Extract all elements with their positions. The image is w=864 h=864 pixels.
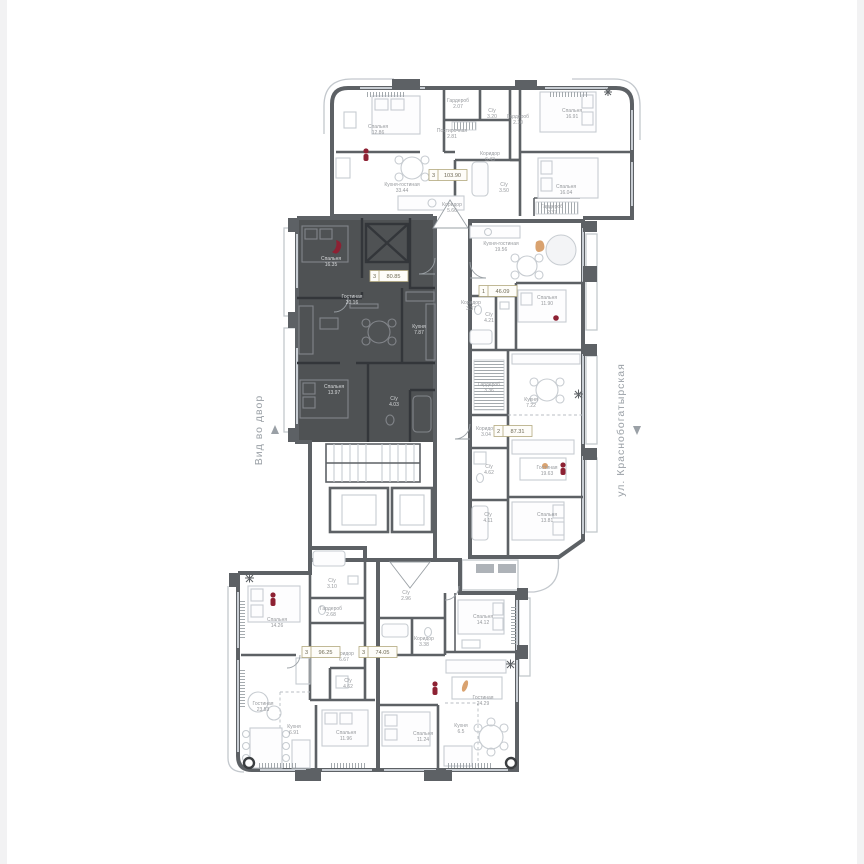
room-area: 13.97 <box>328 390 341 396</box>
room-area: 5.66 <box>447 208 457 214</box>
room-area: 11.90 <box>541 301 553 307</box>
room-area: 19.63 <box>541 471 554 477</box>
badge-room-count: 3 <box>373 274 376 280</box>
apartment-badge: 396.25 <box>302 647 340 658</box>
badge-area: 96.25 <box>319 650 333 656</box>
apartment-badge: 287.31 <box>494 426 532 437</box>
badge-area: 103.90 <box>444 173 461 179</box>
badge-area: 80.85 <box>387 274 401 280</box>
room-area: 2.81 <box>447 134 457 140</box>
room-area: 7.22 <box>526 403 536 409</box>
terrace-planter-2 <box>498 564 516 573</box>
apartment-badge: 146.09 <box>479 286 517 297</box>
room-area: 33.44 <box>396 188 409 194</box>
room-area: 16.35 <box>325 262 338 268</box>
room-area: 23.53 <box>257 707 270 713</box>
room-area: 3.04 <box>481 432 491 438</box>
building-core <box>310 444 435 560</box>
room-area: 11.96 <box>340 736 352 742</box>
room-area: 2.96 <box>401 596 411 602</box>
room-area: 14.12 <box>477 620 490 626</box>
badge-area: 87.31 <box>511 429 525 435</box>
courtyard-label: Вид во двор <box>253 395 265 465</box>
room-area: 4.03 <box>389 402 399 408</box>
room-area: 11.24 <box>417 737 429 743</box>
room-area: 4.62 <box>484 470 494 476</box>
room-area: 3.37 <box>466 306 476 312</box>
room-area: 14.26 <box>271 623 284 629</box>
room-area: 2.68 <box>326 612 336 618</box>
apartment-unit-74-05[interactable] <box>379 594 516 769</box>
room-area: 3.36 <box>484 388 494 394</box>
room-area: 4.21 <box>484 318 494 324</box>
room-area: 24.29 <box>477 701 490 707</box>
apartment-badge: 380.85 <box>370 271 408 282</box>
room-area: 12.86 <box>372 130 385 136</box>
room-area: 3.20 <box>487 114 497 120</box>
apartment-unit-96-25[interactable] <box>239 574 377 769</box>
room-area: 16.91 <box>566 114 579 120</box>
room-area: 6.43 <box>485 157 495 163</box>
room-area: 7.87 <box>414 330 424 336</box>
badge-room-count: 2 <box>497 429 500 435</box>
room-area: 6.5 <box>458 729 465 735</box>
entry-door-wedge <box>390 562 430 588</box>
balcony-right-2 <box>586 356 597 444</box>
balcony-bottom-right <box>519 598 530 676</box>
badge-room-count: 3 <box>432 173 435 179</box>
badge-room-count: 3 <box>362 650 365 656</box>
apartment-badge: 3103.90 <box>429 170 467 181</box>
street-label: ул. Краснобогатырская <box>615 363 627 497</box>
room-area: 6.67 <box>339 657 349 663</box>
room-area: 2.07 <box>453 104 463 110</box>
apartment-badge: 374.05 <box>359 647 397 658</box>
room-area: 3.38 <box>419 642 429 648</box>
courtyard-arrow-icon <box>271 425 279 434</box>
room-area: 19.56 <box>495 247 508 253</box>
room-area: 2.37 <box>547 210 557 216</box>
badge-room-count: 3 <box>305 650 308 656</box>
room-area: 4.11 <box>483 518 493 524</box>
room-area: 6.91 <box>289 730 299 736</box>
balcony-right-3 <box>586 458 597 532</box>
street-arrow-icon <box>633 426 641 435</box>
room-area: 4.62 <box>343 684 353 690</box>
room-area: 13.81 <box>541 518 554 524</box>
room-area: 2.10 <box>513 120 523 126</box>
room-area: 3.50 <box>499 188 509 194</box>
room-area: 20.16 <box>346 300 359 306</box>
badge-room-count: 1 <box>482 289 485 295</box>
floor-plan: Вид во двор ул. Краснобогатырская Спальн… <box>0 0 864 864</box>
badge-area: 46.09 <box>496 289 510 295</box>
room-area: 16.04 <box>560 190 573 196</box>
terrace-planter-1 <box>476 564 494 573</box>
room-area: 3.10 <box>327 584 337 590</box>
badge-area: 74.05 <box>376 650 390 656</box>
terrace-outline <box>520 557 559 592</box>
